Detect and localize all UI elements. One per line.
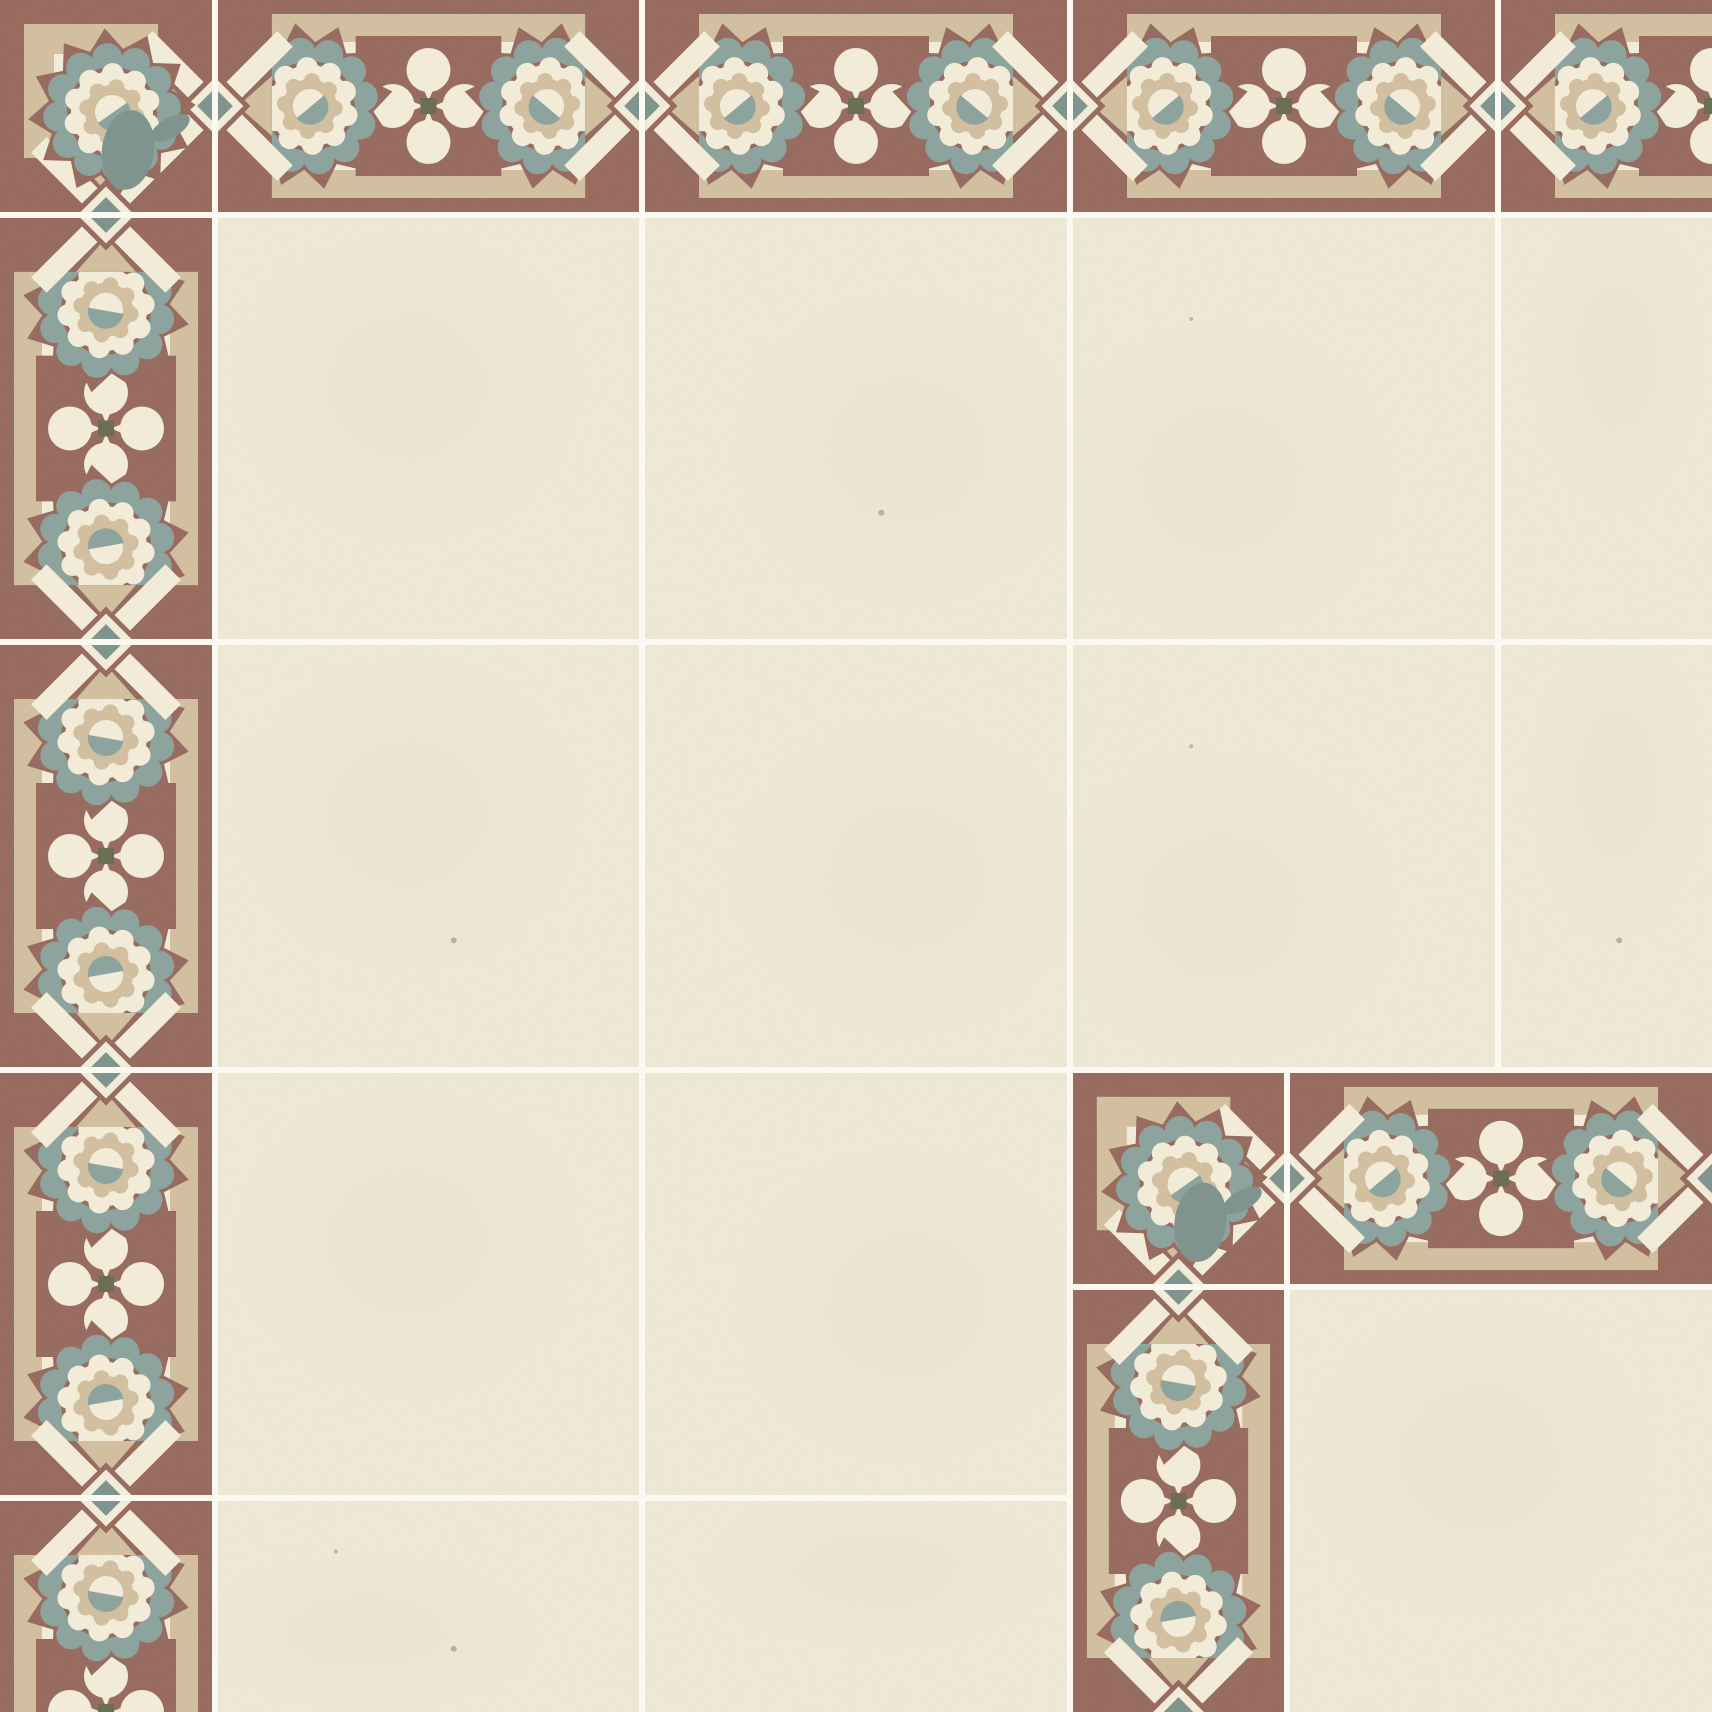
tile-floor-svg	[0, 0, 1712, 1712]
tile-floor-image	[0, 0, 1712, 1712]
grain-overlay	[0, 0, 1712, 1712]
